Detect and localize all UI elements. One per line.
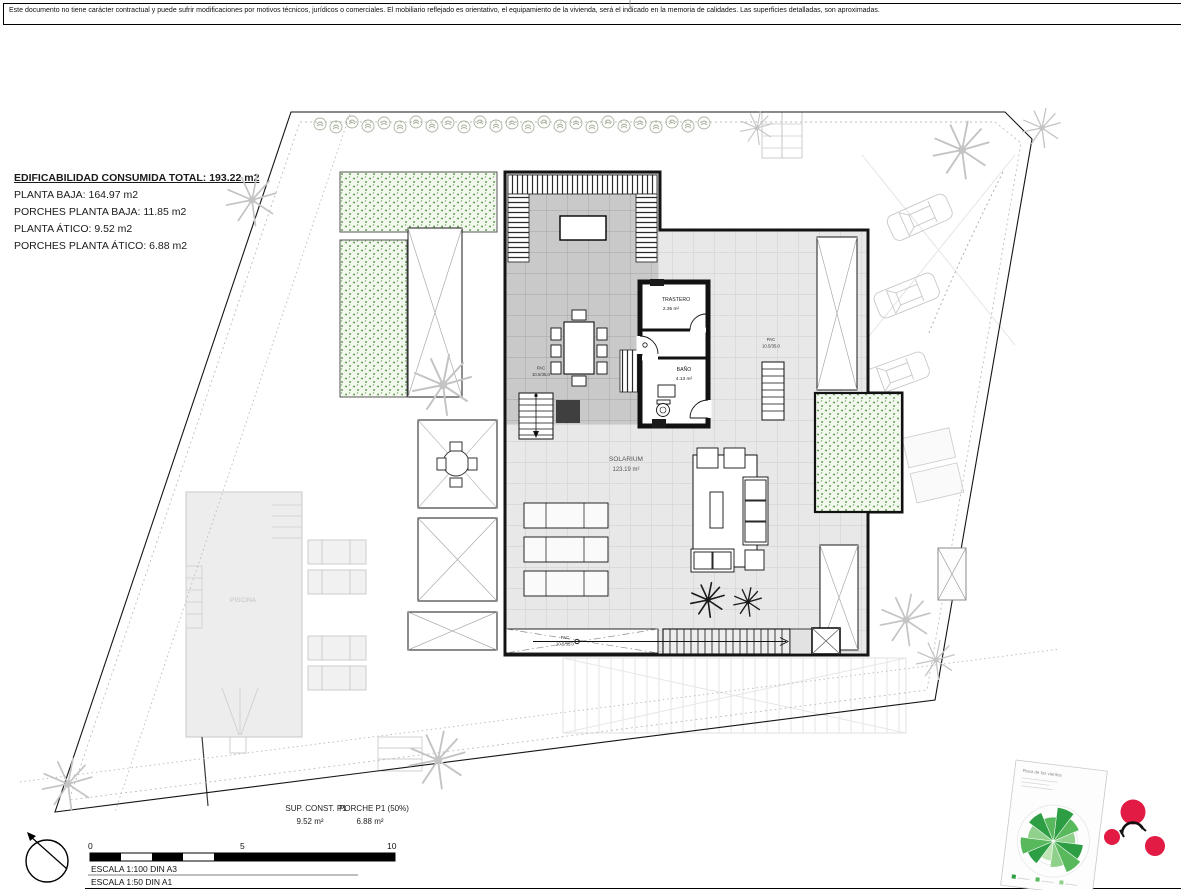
ac-unit-label: PAC xyxy=(561,635,570,640)
armchair xyxy=(697,448,718,468)
ac-unit-label: PAC xyxy=(537,366,546,371)
pergola-rect xyxy=(418,518,497,601)
wall-block xyxy=(652,419,666,428)
scale-tick-10: 10 xyxy=(387,841,397,851)
coffee-table xyxy=(710,492,723,528)
hedge-row xyxy=(314,116,710,133)
car-icon xyxy=(885,192,954,243)
summary-col1-value: 9.52 m² xyxy=(296,817,323,826)
ac-unit-label: 10.5/35.0 xyxy=(556,642,575,647)
parked-cars xyxy=(862,155,1015,397)
slatted-bench xyxy=(620,350,640,392)
skylight xyxy=(560,216,606,240)
secondary-stair xyxy=(762,362,784,420)
bano-name-label: BAÑO xyxy=(677,366,692,373)
lounge-sofa-set xyxy=(691,448,768,572)
ac-unit-label: 10.5/35.0 xyxy=(762,344,781,349)
left-pergola-rects xyxy=(408,228,497,650)
pool xyxy=(186,492,302,753)
wind-rose-card: Rosa de los vientos xyxy=(1001,760,1108,890)
bottom-void xyxy=(506,629,658,653)
north-compass xyxy=(26,832,68,882)
sink xyxy=(658,385,675,397)
dark-planter xyxy=(556,400,580,423)
escala-a3-label: ESCALA 1:100 DIN A3 xyxy=(91,864,177,874)
driveway-curve xyxy=(928,172,1003,335)
trastero-area-label: 2.35 m² xyxy=(663,306,680,312)
right-ground-planters xyxy=(902,428,964,503)
armchair xyxy=(724,448,745,468)
interior-stair xyxy=(519,393,553,439)
wall-block xyxy=(650,279,664,286)
drawing-sheet: Este documento no tiene carácter contrac… xyxy=(0,0,1181,890)
ac-unit-label: PAC xyxy=(767,337,776,342)
bano-area-label: 4.13 m² xyxy=(676,376,693,382)
summary-col2-label: PORCHE P1 (50%) xyxy=(339,804,409,813)
scale-tick-0: 0 xyxy=(88,841,93,851)
ground-pergola-grid xyxy=(563,658,906,733)
pool-loungers xyxy=(308,540,366,690)
deck-green-planter xyxy=(815,393,902,512)
outer-x-square xyxy=(938,548,966,600)
brand-logo xyxy=(1104,800,1165,857)
car-icon xyxy=(872,271,941,320)
pergola-rect xyxy=(408,612,497,650)
corner-x-square xyxy=(812,628,840,654)
sun-loungers xyxy=(524,503,608,596)
solarium-name: SOLARIUM xyxy=(609,456,643,463)
scale-tick-5: 5 xyxy=(240,841,245,851)
pergola-rect-with-table xyxy=(418,420,497,508)
summary-table: SUP. CONST. P1 PORCHE P1 (50%) 9.52 m² 6… xyxy=(285,804,409,826)
service-core: TRASTERO 2.35 m² BAÑO 4.13 m² xyxy=(637,279,712,428)
utility-line xyxy=(202,737,208,806)
trastero-name-label: TRASTERO xyxy=(662,297,690,303)
side-table xyxy=(745,550,764,570)
site-plan-drawing: PISCINA xyxy=(0,0,1181,890)
ac-unit-label: 10.5/35.0 xyxy=(532,372,551,377)
escala-a1-label: ESCALA 1:50 DIN A1 xyxy=(91,877,173,887)
car-icon xyxy=(862,350,931,397)
round-table xyxy=(443,450,469,476)
solarium-area: 123.19 m² xyxy=(612,467,639,473)
summary-col1-label: SUP. CONST. P1 xyxy=(285,804,347,813)
summary-col2-value: 6.88 m² xyxy=(356,817,383,826)
alignment-dotted-line xyxy=(20,649,1060,782)
pool-label: PISCINA xyxy=(230,597,257,604)
